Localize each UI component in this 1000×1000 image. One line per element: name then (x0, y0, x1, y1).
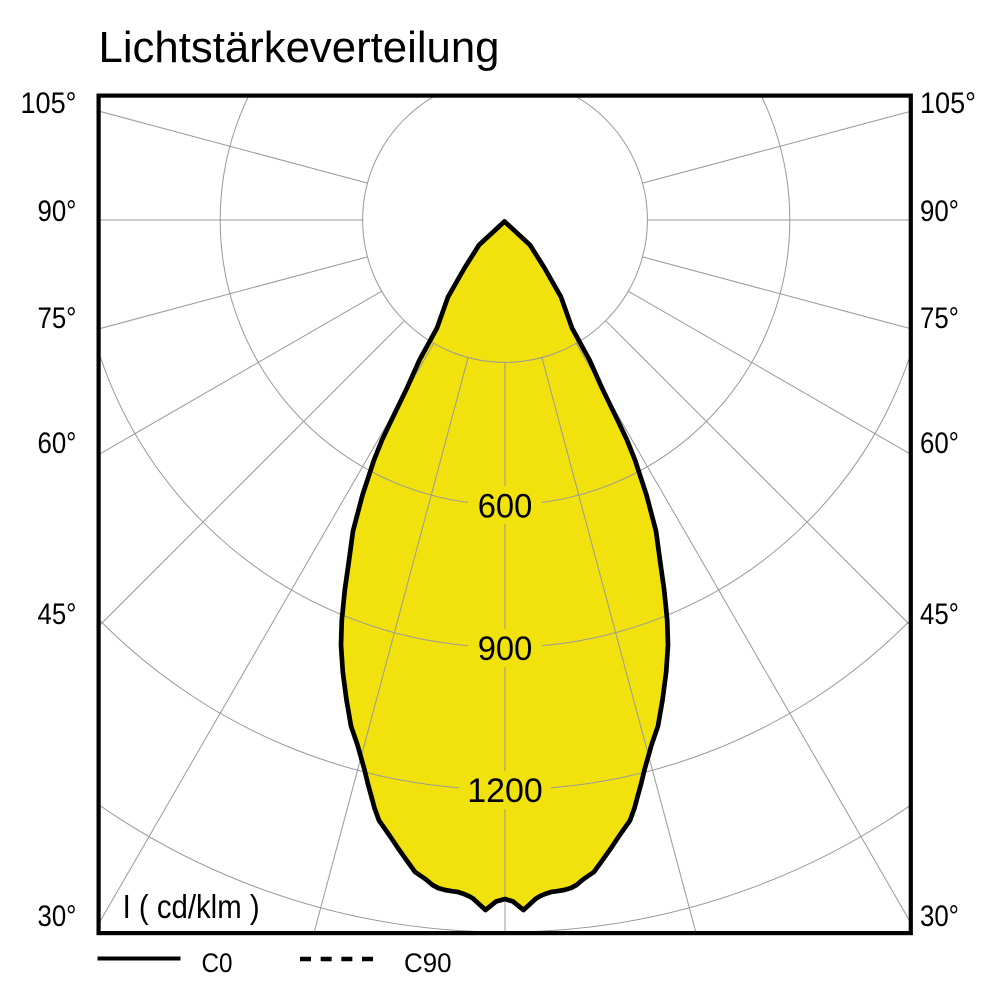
svg-text:75°: 75° (38, 302, 77, 335)
svg-text:60°: 60° (920, 427, 959, 460)
svg-text:90°: 90° (920, 195, 959, 228)
svg-text:60°: 60° (38, 427, 77, 460)
svg-text:105°: 105° (21, 87, 77, 120)
svg-text:90°: 90° (38, 195, 77, 228)
svg-text:I ( cd/klm ): I ( cd/klm ) (123, 888, 260, 925)
svg-text:45°: 45° (38, 598, 77, 631)
svg-text:75°: 75° (920, 302, 959, 335)
svg-text:30°: 30° (920, 900, 959, 933)
svg-text:600: 600 (478, 487, 533, 525)
svg-text:45°: 45° (920, 598, 959, 631)
svg-text:Lichtstärkeverteilung: Lichtstärkeverteilung (99, 23, 500, 72)
svg-text:C0: C0 (202, 948, 233, 978)
svg-text:900: 900 (478, 630, 533, 668)
svg-text:1200: 1200 (467, 772, 543, 810)
svg-text:30°: 30° (38, 900, 77, 933)
svg-text:105°: 105° (920, 87, 976, 120)
svg-text:C90: C90 (404, 948, 452, 978)
